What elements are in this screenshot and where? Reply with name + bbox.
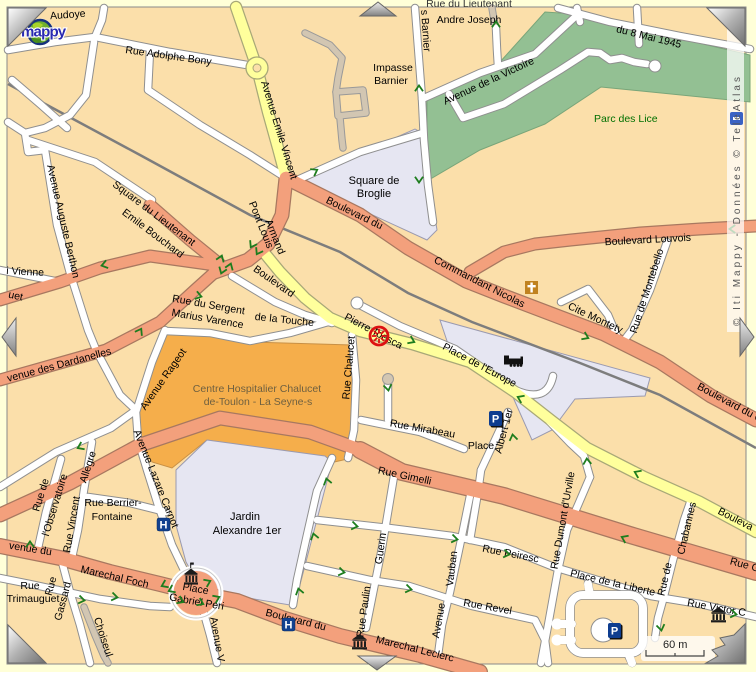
svg-text:Parc des Lice: Parc des Lice <box>594 113 658 125</box>
svg-text:Fontaine: Fontaine <box>92 511 133 523</box>
svg-text:Centre Hospitalier Chalucet: Centre Hospitalier Chalucet <box>193 383 321 395</box>
svg-text:Andre Joseph: Andre Joseph <box>437 14 502 26</box>
svg-text:i Vienne: i Vienne <box>6 265 44 279</box>
svg-text:P: P <box>611 626 618 638</box>
svg-text:H: H <box>285 620 293 632</box>
svg-text:P: P <box>492 414 499 426</box>
svg-text:H: H <box>160 520 168 532</box>
svg-text:60 m: 60 m <box>663 639 687 651</box>
svg-text:de-Toulon - La Seyne-s: de-Toulon - La Seyne-s <box>204 396 313 408</box>
svg-text:Rue: Rue <box>20 580 39 592</box>
svg-text:Impasse: Impasse <box>373 62 413 74</box>
svg-text:Barnier: Barnier <box>374 75 408 87</box>
svg-text:Audoye: Audoye <box>50 8 87 22</box>
svg-text:Square de: Square de <box>349 175 400 187</box>
svg-text:Alexandre 1er: Alexandre 1er <box>213 525 282 537</box>
svg-text:Rue du Lieutenant: Rue du Lieutenant <box>426 0 512 10</box>
svg-text:Jardin: Jardin <box>230 511 260 523</box>
svg-text:© Iti Mappy - Données © TeleAt: © Iti Mappy - Données © TeleAtlas <box>732 74 743 326</box>
svg-text:Place: Place <box>468 440 494 452</box>
svg-text:Broglie: Broglie <box>357 188 391 200</box>
svg-text:Rue Berrier-: Rue Berrier- <box>84 497 142 509</box>
